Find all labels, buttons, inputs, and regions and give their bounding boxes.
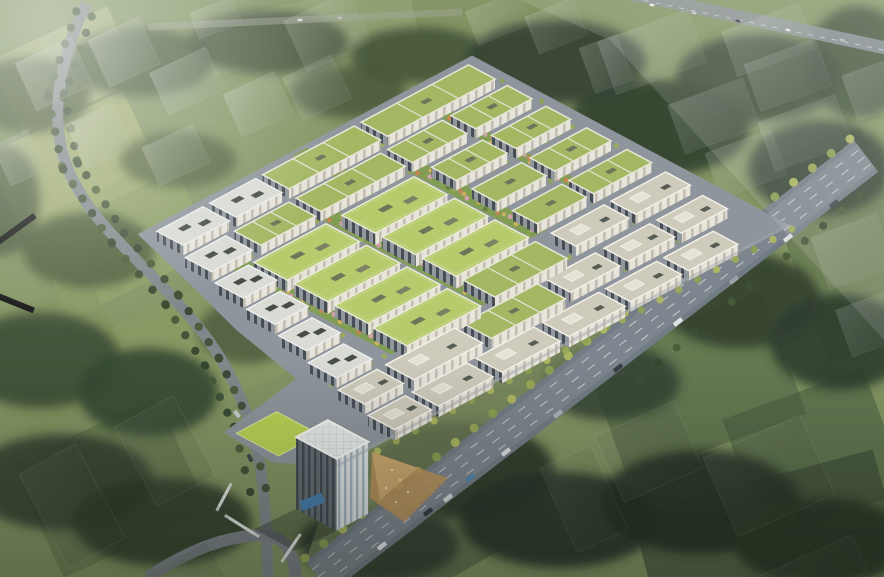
bottom-vignette <box>0 0 884 577</box>
aerial-rendering-industrial-park <box>0 0 884 577</box>
atmosphere-layer <box>0 0 884 577</box>
scene-canvas <box>0 0 884 577</box>
